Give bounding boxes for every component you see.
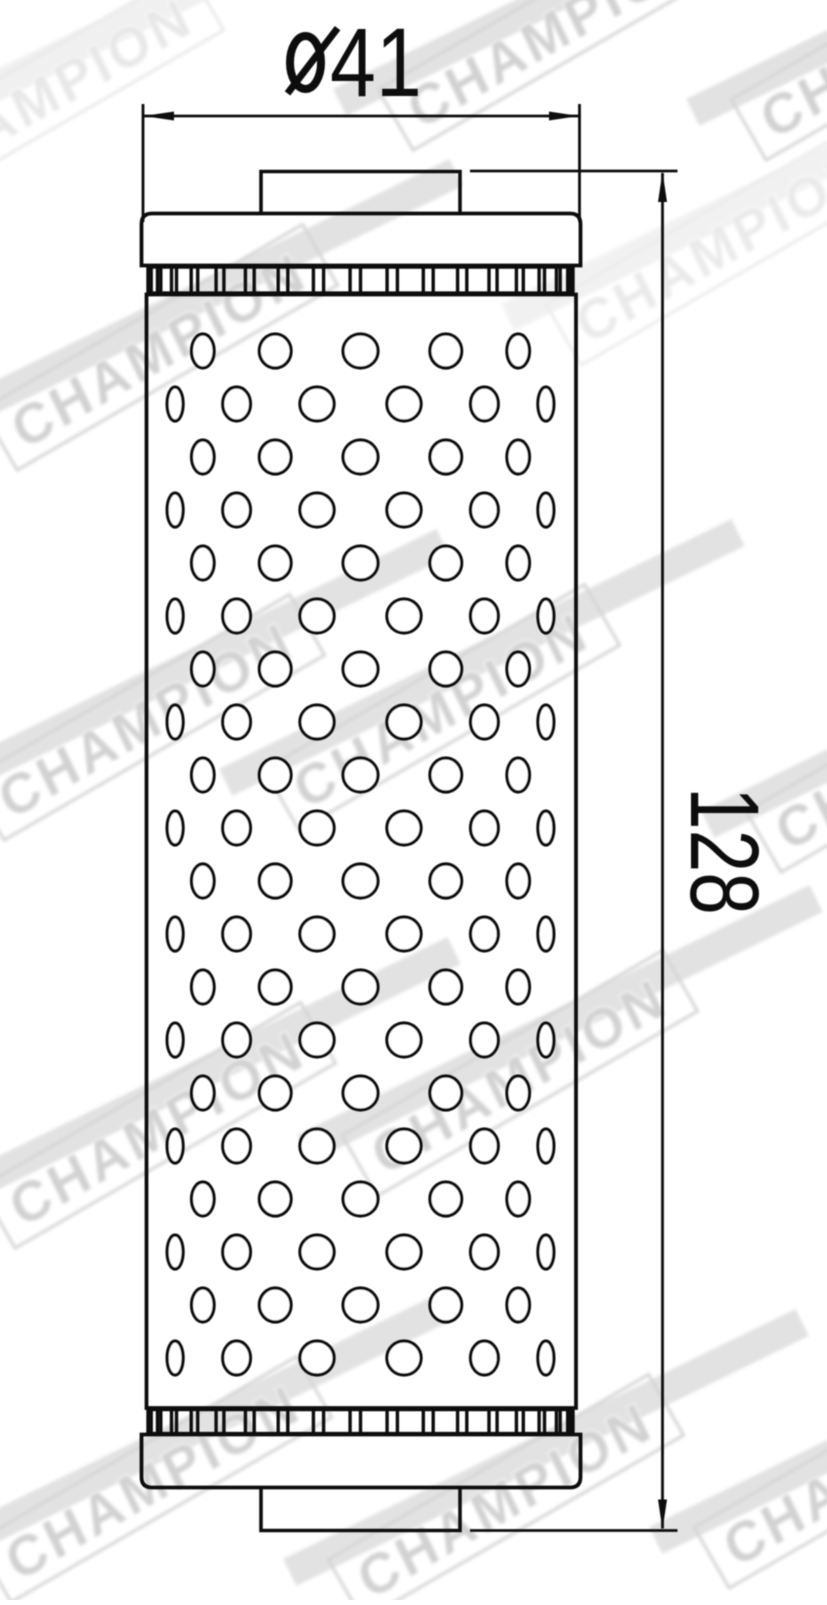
svg-text:128: 128	[670, 787, 779, 915]
svg-text:41: 41	[330, 10, 422, 118]
